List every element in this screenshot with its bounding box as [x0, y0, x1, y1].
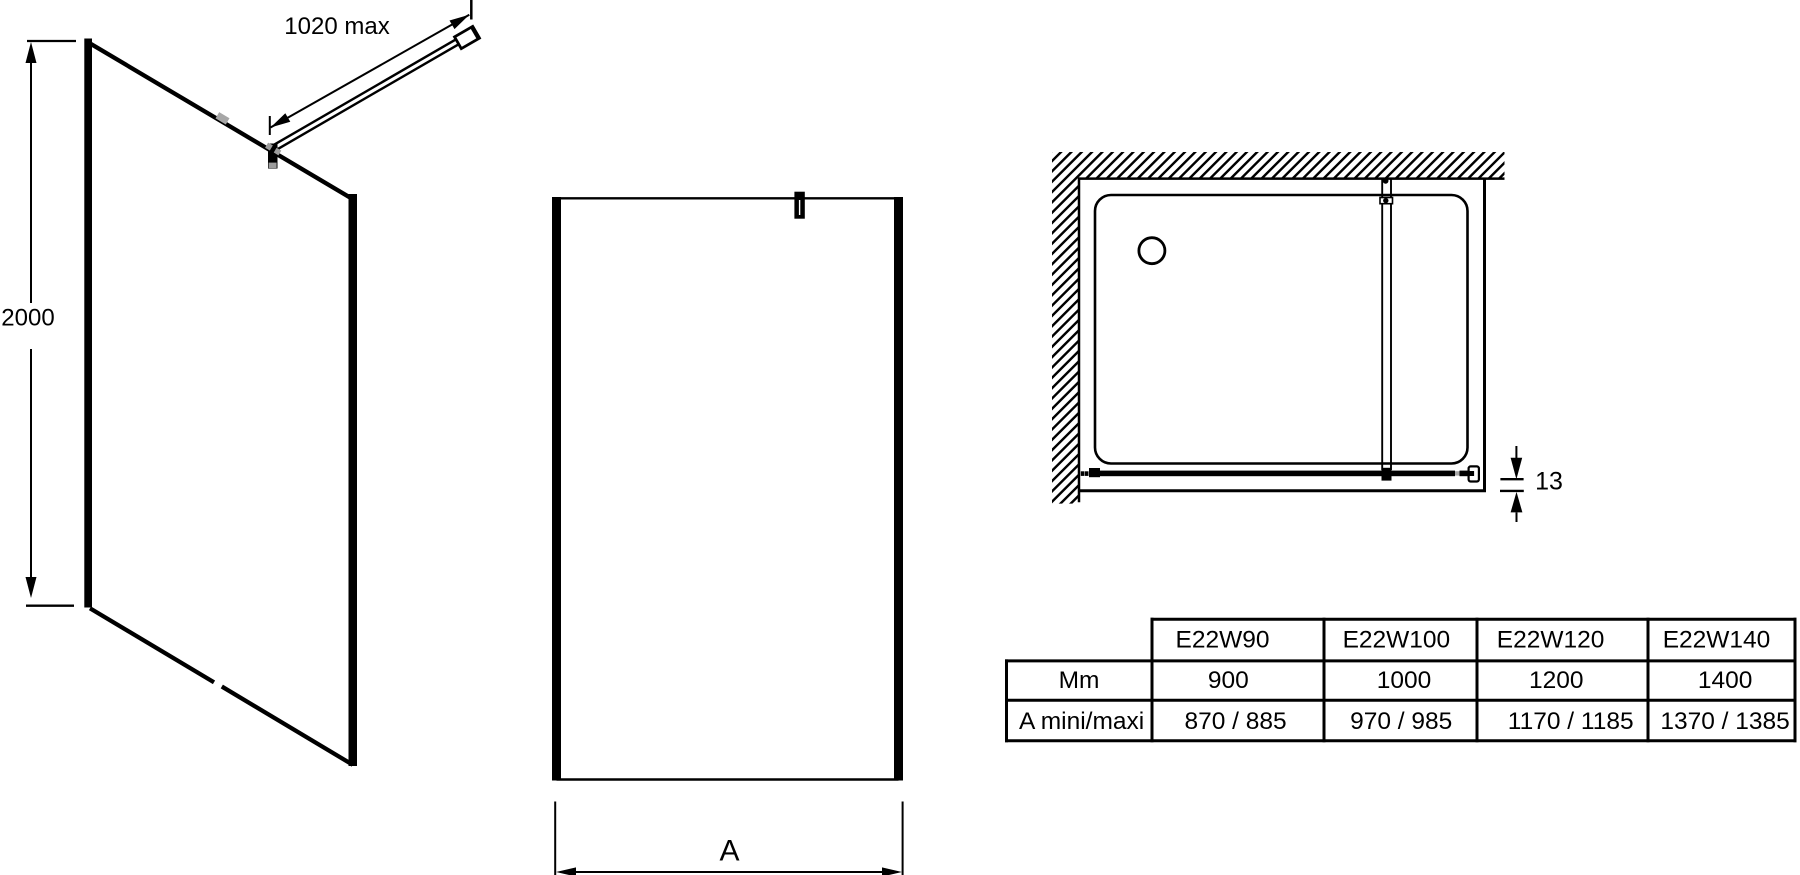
svg-text:2000: 2000 [1, 305, 54, 332]
svg-text:E22W90: E22W90 [1176, 626, 1270, 653]
svg-text:13: 13 [1535, 468, 1563, 496]
svg-text:870 / 885: 870 / 885 [1185, 708, 1287, 735]
svg-text:1200: 1200 [1529, 667, 1584, 694]
svg-text:1400: 1400 [1698, 667, 1753, 694]
svg-text:900: 900 [1208, 667, 1249, 694]
svg-text:E22W100: E22W100 [1343, 626, 1451, 653]
svg-text:E22W120: E22W120 [1497, 626, 1605, 653]
svg-text:E22W140: E22W140 [1663, 626, 1771, 653]
svg-text:A: A [719, 835, 739, 868]
svg-text:970 / 985: 970 / 985 [1350, 708, 1452, 735]
svg-text:Mm: Mm [1059, 667, 1100, 694]
svg-text:A mini/maxi: A mini/maxi [1019, 708, 1144, 735]
svg-text:1370 / 1385: 1370 / 1385 [1660, 708, 1789, 735]
svg-text:1020 max: 1020 max [284, 13, 389, 40]
svg-text:1170 / 1185: 1170 / 1185 [1508, 708, 1634, 735]
svg-text:1000: 1000 [1377, 667, 1432, 694]
